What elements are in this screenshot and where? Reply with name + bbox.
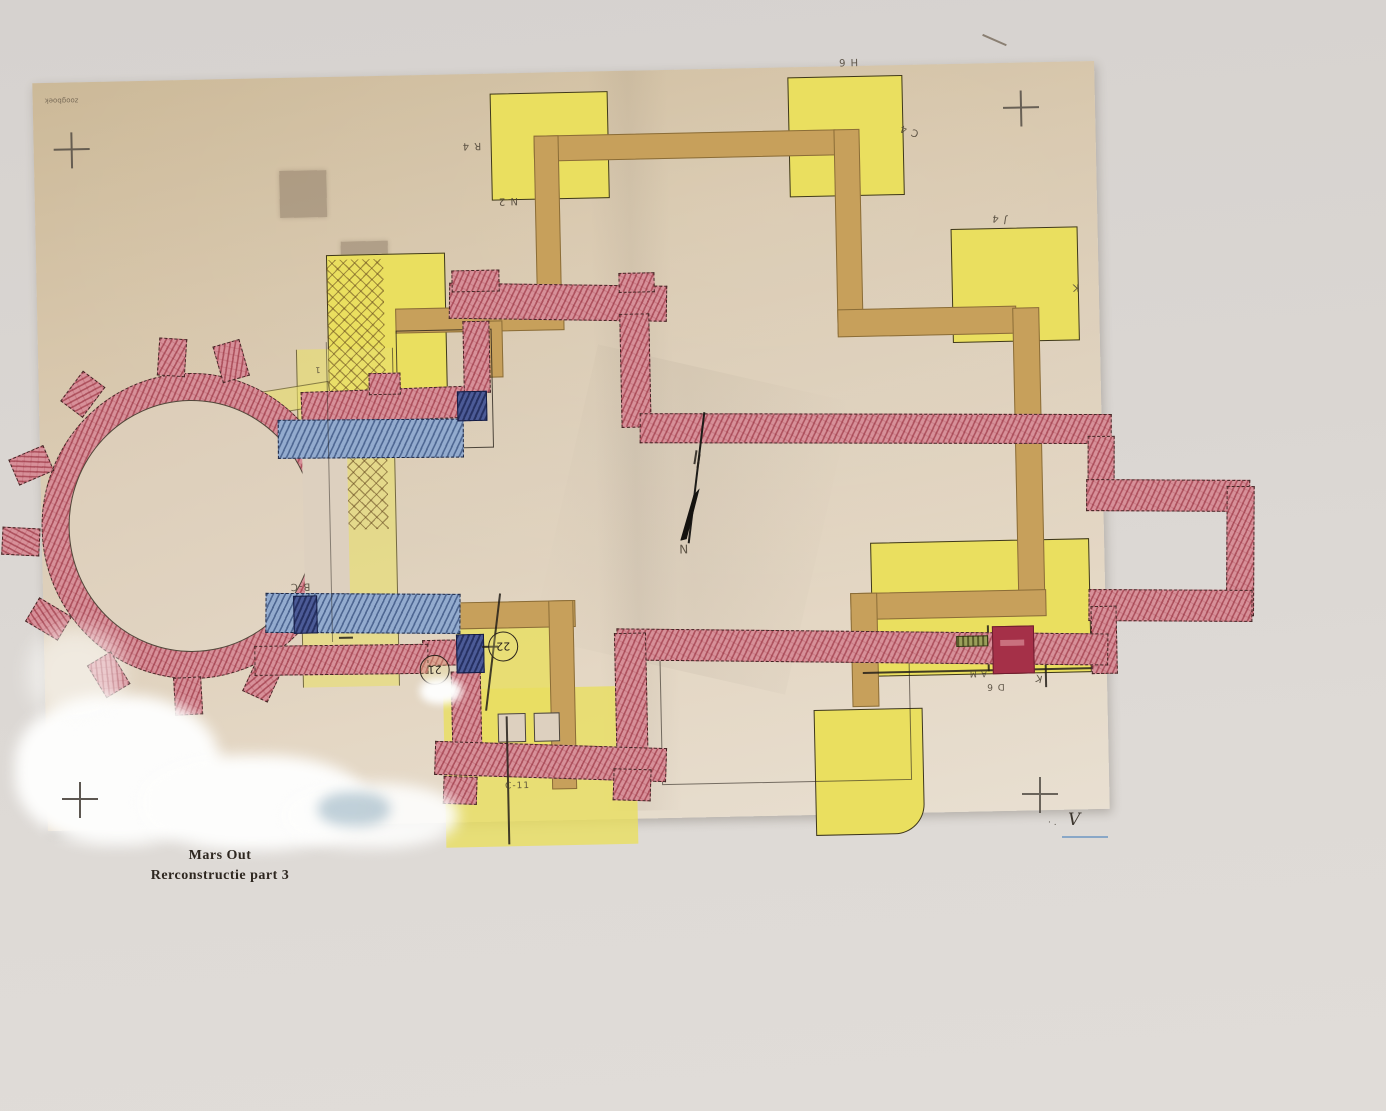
caption-title: Mars Out xyxy=(110,846,330,866)
grid-label-k2: K xyxy=(1034,672,1044,684)
red-pier xyxy=(614,632,648,751)
v-mark: V xyxy=(1068,810,1080,830)
grid-label-bc: B-C xyxy=(290,580,311,591)
red-pier-cap xyxy=(618,272,654,293)
buttress xyxy=(1,527,40,557)
tan-wall xyxy=(837,306,1017,338)
red-pier-cap xyxy=(451,269,499,292)
red-wall-bump xyxy=(368,373,400,396)
registration-cross xyxy=(53,132,90,169)
v-mark-text: V xyxy=(1068,810,1080,830)
smudge-blue xyxy=(318,792,390,826)
blue-band xyxy=(278,419,464,459)
red-long-wall xyxy=(640,413,1112,444)
v-mark-underline xyxy=(1062,836,1108,838)
red-pier xyxy=(619,313,651,428)
dark-blue-block xyxy=(293,595,318,633)
grid-label-h6: H 6 xyxy=(838,56,858,67)
corner-note: zoogboek xyxy=(45,97,79,105)
buttress xyxy=(157,337,187,377)
pier-notch xyxy=(498,713,527,743)
tan-wall xyxy=(1012,307,1045,597)
tape-square xyxy=(279,170,327,218)
dark-blue-block xyxy=(456,634,485,674)
scene: N 21 22 R 4 N 2 H 6 C 4 J 4 K 1 B-C A M … xyxy=(0,0,1386,1111)
grid-label-j4: J 4 xyxy=(991,212,1008,225)
registration-cross xyxy=(1003,90,1040,127)
red-wall-bump xyxy=(613,768,652,801)
pier-notch xyxy=(534,712,561,742)
north-label: N xyxy=(678,542,688,556)
grid-label-d6: D 6 xyxy=(986,681,1005,691)
leader-arrow xyxy=(339,637,353,639)
grid-label-1: 1 xyxy=(314,365,320,374)
caption-subtitle: Rerconstructie part 3 xyxy=(110,866,330,886)
grid-label-k: K xyxy=(1072,281,1080,292)
caption: Mars Out Rerconstructie part 3 xyxy=(110,846,330,886)
registration-cross xyxy=(62,782,98,818)
olive-strip xyxy=(956,635,988,647)
solid-red-block xyxy=(992,625,1035,674)
grid-label-r4: R 4 xyxy=(462,140,482,151)
solid-red-block-stripe xyxy=(1000,640,1024,647)
dark-blue-block xyxy=(457,391,488,422)
grid-label-n2: N 2 xyxy=(498,195,518,206)
grid-label-c11: C-11 xyxy=(505,781,530,792)
registration-cross xyxy=(1022,777,1058,813)
room-outline xyxy=(659,645,912,785)
grid-label-am: A M xyxy=(969,669,987,678)
red-pier xyxy=(462,321,491,394)
worn-paper-patch xyxy=(420,678,462,704)
tan-wall xyxy=(833,129,863,334)
worn-paper-patch xyxy=(28,628,123,718)
red-wall xyxy=(254,644,428,676)
pencil-line xyxy=(982,34,1006,46)
v-mark-dots: · . xyxy=(1048,818,1057,828)
tan-wall xyxy=(850,589,1047,620)
